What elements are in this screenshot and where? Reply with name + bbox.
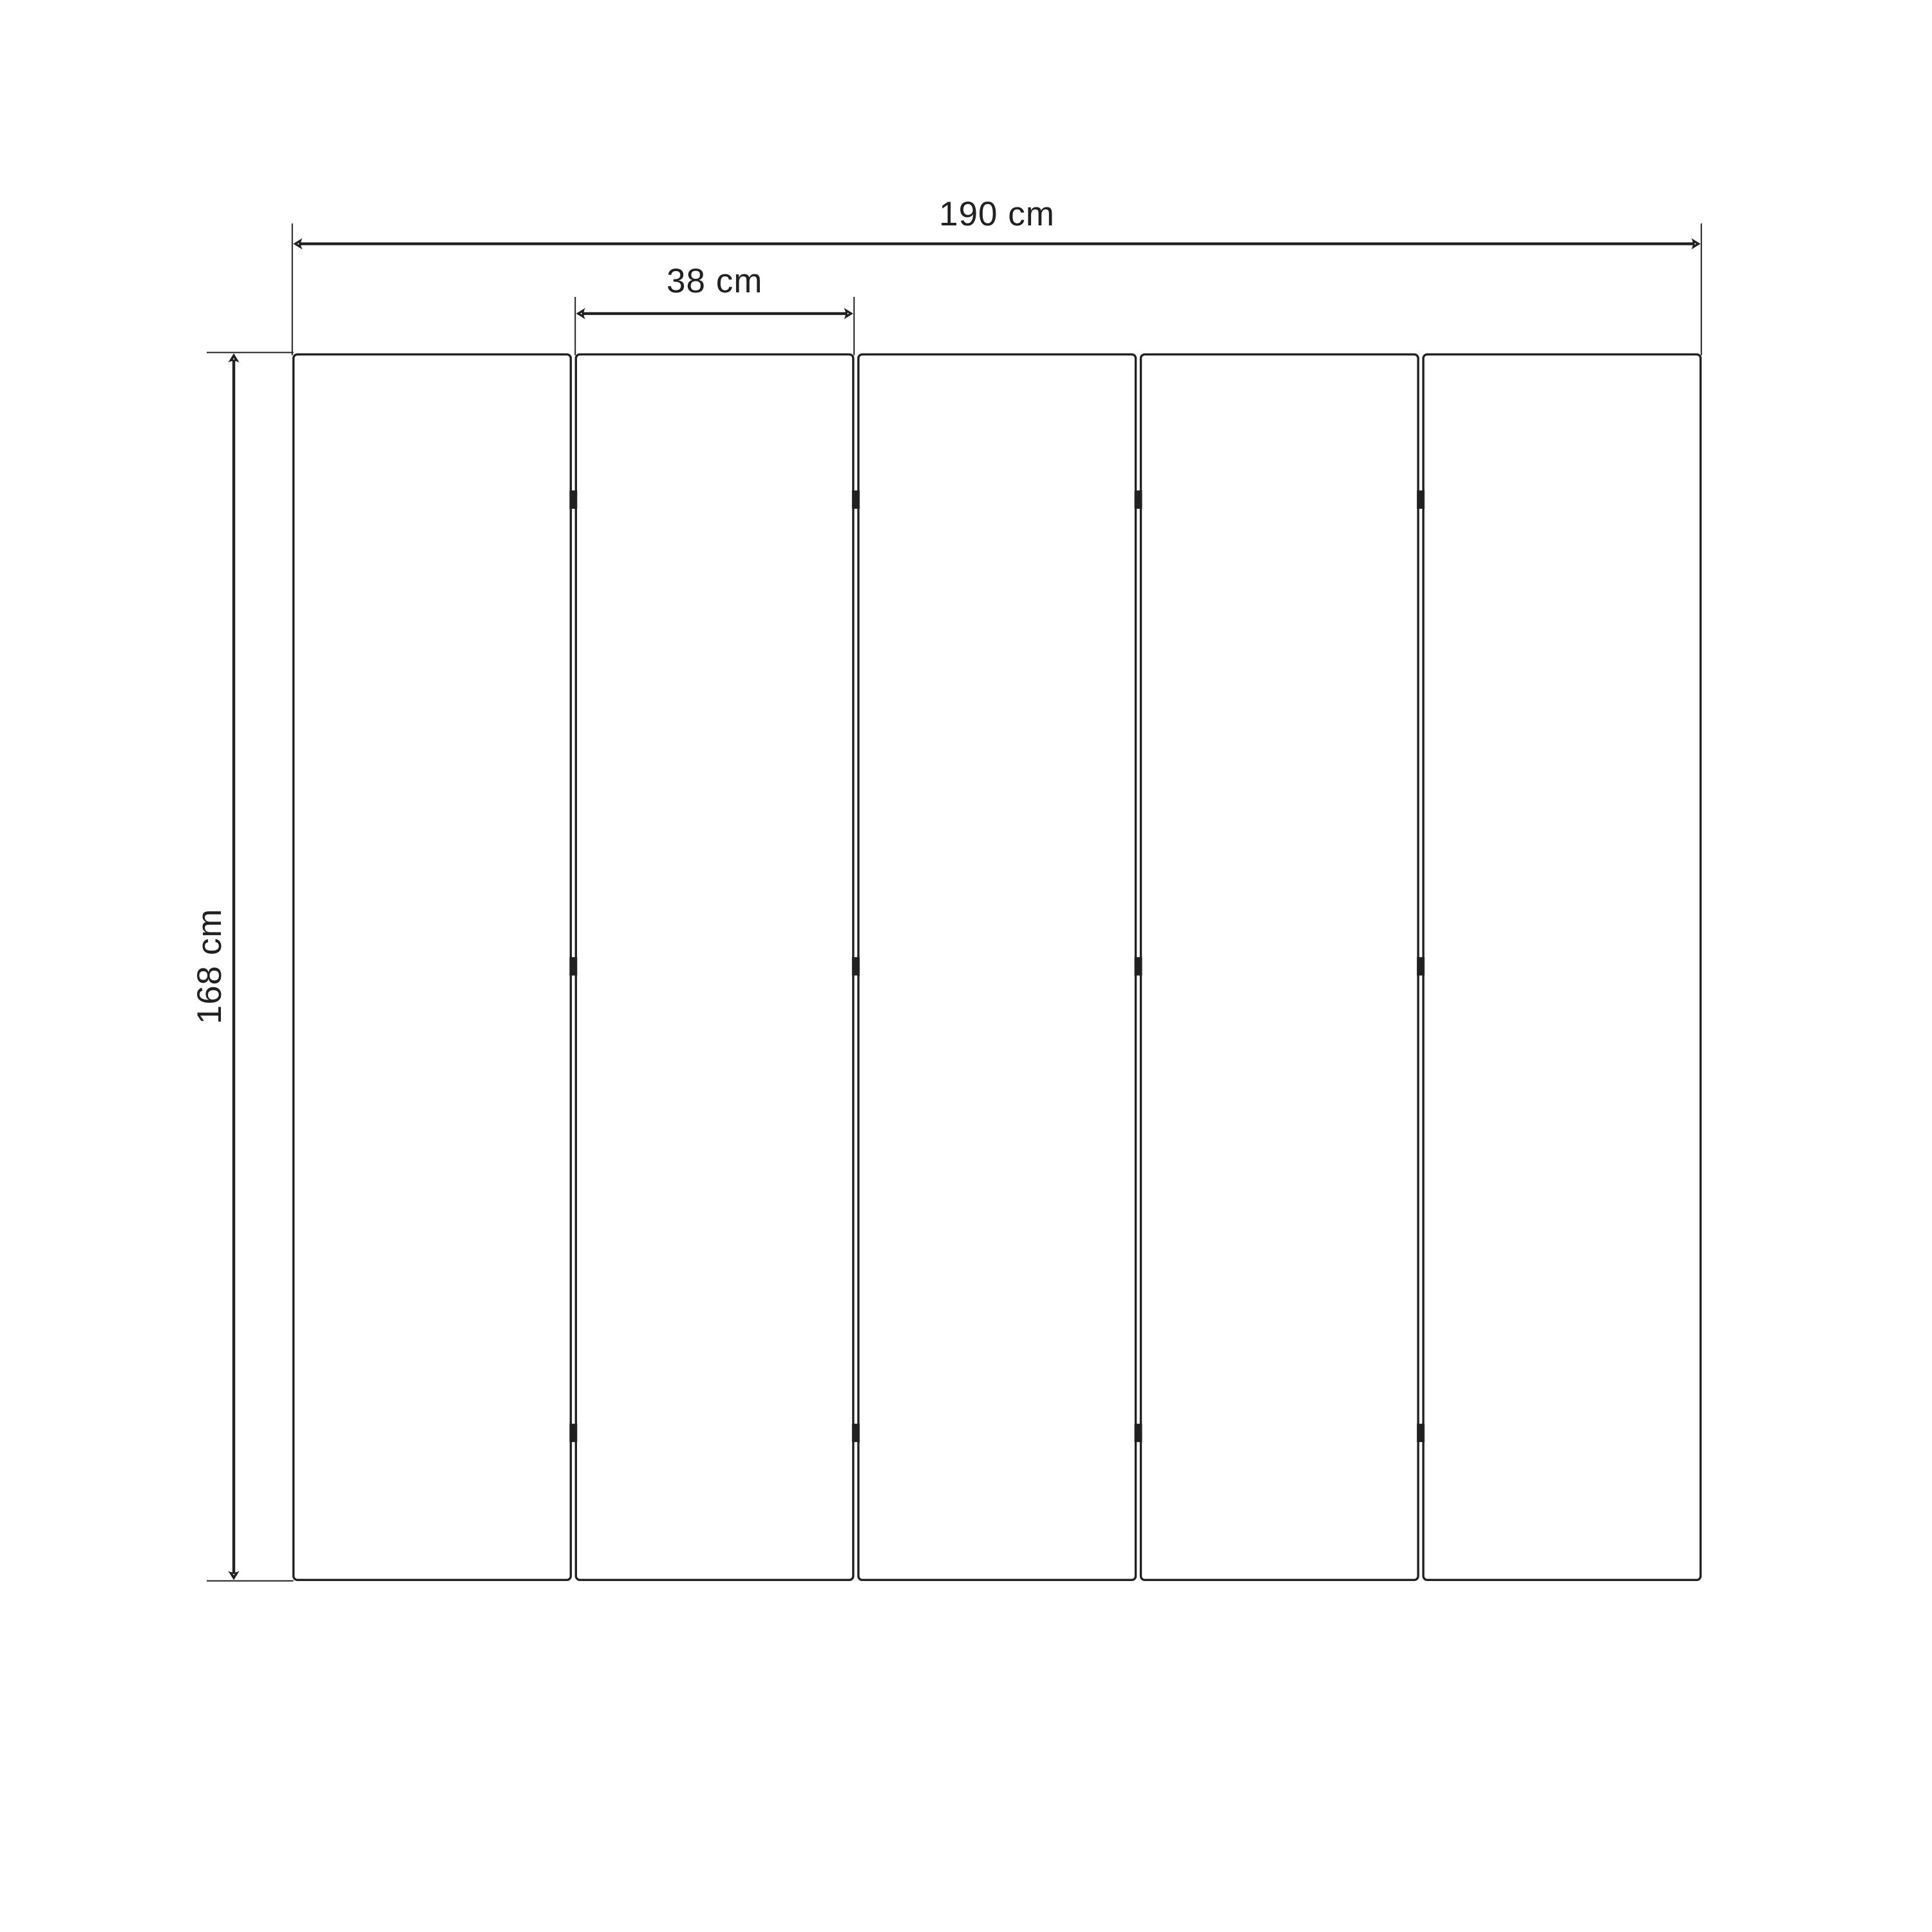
svg-text:38 cm: 38 cm	[667, 262, 762, 300]
svg-text:190 cm: 190 cm	[939, 195, 1055, 233]
svg-text:168 cm: 168 cm	[191, 909, 229, 1025]
